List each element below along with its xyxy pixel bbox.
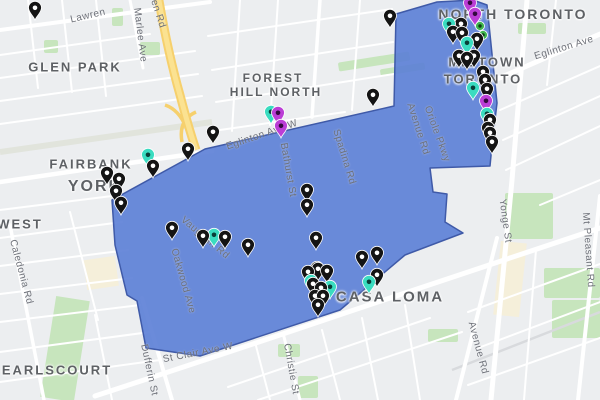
map-pin-green[interactable]	[476, 22, 485, 31]
map-viewport: GLEN PARKFORESTHILL NORTHNORTH TORONTOMI…	[0, 0, 600, 400]
map-canvas[interactable]	[0, 0, 600, 400]
